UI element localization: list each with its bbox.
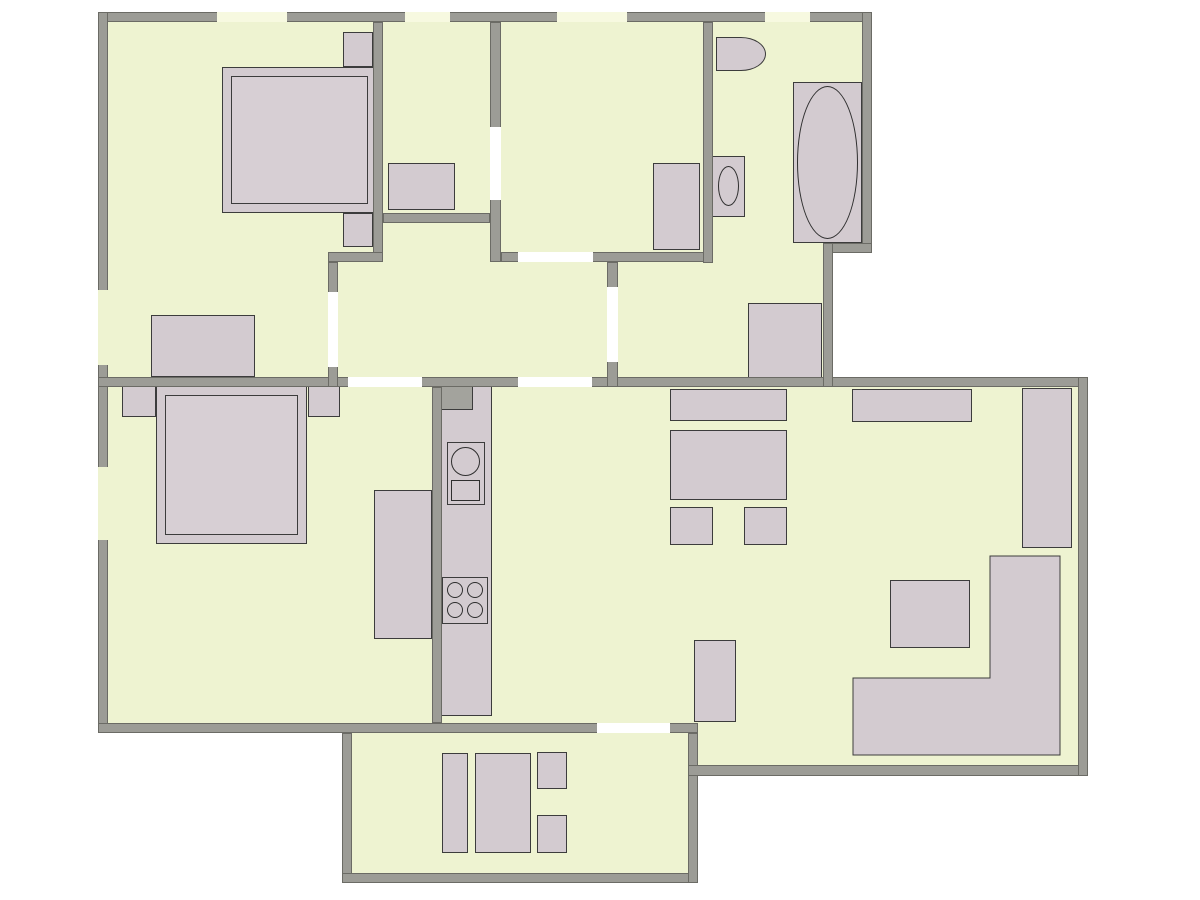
wall-bathroom-right	[862, 12, 872, 253]
tall-wardrobe	[1022, 388, 1072, 548]
door-opening-dining	[518, 377, 592, 387]
door-opening-balcony	[597, 723, 670, 733]
wall-living-bottom	[688, 765, 1088, 776]
bed-mattress	[165, 395, 298, 535]
burner	[467, 602, 483, 618]
bathtub-basin-oval	[797, 86, 858, 239]
burner	[447, 582, 463, 598]
wall-balcony-right	[688, 733, 698, 883]
window-opening	[405, 12, 450, 22]
wall-middleroom-bath	[703, 22, 713, 263]
coffee-table	[890, 580, 970, 648]
dining-table	[670, 430, 787, 500]
nightstand	[308, 386, 340, 417]
window-opening	[98, 467, 108, 540]
sideboard	[852, 389, 972, 422]
window-opening	[557, 12, 627, 22]
kitchen-sink-basin	[451, 447, 480, 476]
closet-dresser	[388, 163, 455, 210]
kitchen-counter	[440, 384, 492, 716]
window-opening	[765, 12, 810, 22]
window-opening	[217, 12, 287, 22]
window-opening	[98, 290, 108, 365]
door-opening-middleroom	[518, 252, 593, 262]
balcony-chair	[537, 752, 567, 789]
chair	[670, 507, 713, 545]
burner	[447, 602, 463, 618]
wall-top-exterior	[98, 12, 872, 22]
wall-closet-bottom	[383, 213, 490, 223]
hall-wardrobe	[748, 303, 822, 378]
nightstand	[343, 32, 373, 67]
dresser	[151, 315, 255, 377]
balcony-chair	[537, 815, 567, 853]
wall-left-exterior	[98, 12, 108, 733]
wall-bedroom1-right	[373, 22, 383, 262]
wall-bedroom1-step	[328, 252, 383, 262]
wardrobe	[653, 163, 700, 250]
desk	[374, 490, 432, 639]
nightstand	[343, 213, 373, 247]
kitchen-shaft	[440, 384, 473, 410]
nightstand	[122, 386, 156, 417]
door-opening-closet	[490, 127, 501, 200]
toilet	[716, 37, 766, 71]
balcony-bench	[442, 753, 468, 853]
wall-corridor-right	[823, 243, 833, 387]
bed-mattress	[231, 76, 368, 204]
wall-kitchen	[432, 387, 442, 723]
balcony-table	[475, 753, 531, 853]
door-opening-bedroom2	[348, 377, 422, 387]
door-opening-corridor	[607, 287, 618, 362]
floor-plan	[0, 0, 1200, 900]
side-cabinet	[694, 640, 736, 722]
chair	[744, 507, 787, 545]
wall-balcony-bottom	[342, 873, 698, 883]
wall-balcony-left	[342, 733, 352, 883]
sideboard	[670, 389, 787, 421]
door-opening-bedroom1	[328, 292, 338, 367]
wall-middle-horizontal	[98, 377, 1088, 387]
wall-living-right	[1078, 377, 1088, 776]
burner	[467, 582, 483, 598]
sink-basin-oval	[718, 166, 739, 206]
kitchen-drainer	[451, 480, 480, 501]
